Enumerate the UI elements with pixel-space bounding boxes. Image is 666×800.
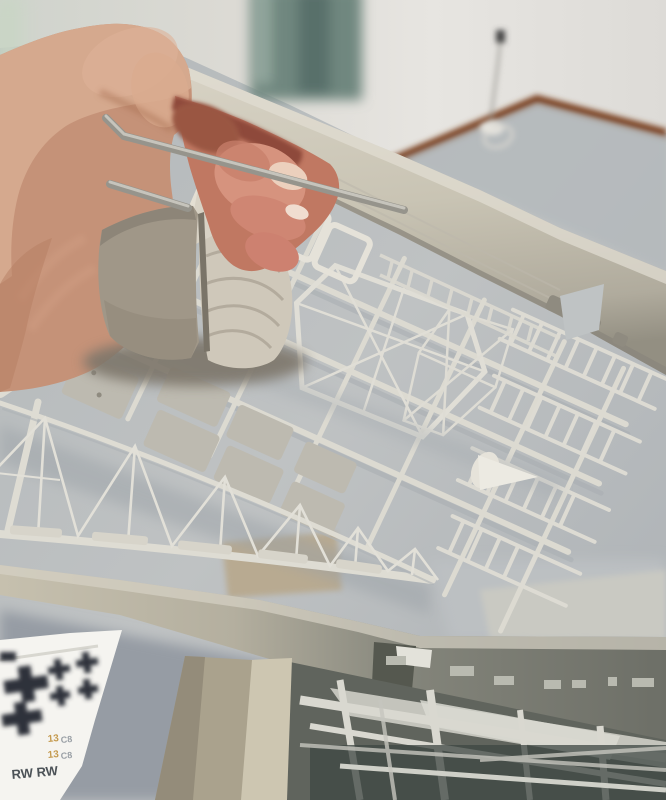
svg-text:C8: C8 xyxy=(60,734,72,745)
svg-text:13: 13 xyxy=(47,749,59,761)
svg-text:13: 13 xyxy=(47,733,59,745)
svg-text:C8: C8 xyxy=(60,750,72,761)
